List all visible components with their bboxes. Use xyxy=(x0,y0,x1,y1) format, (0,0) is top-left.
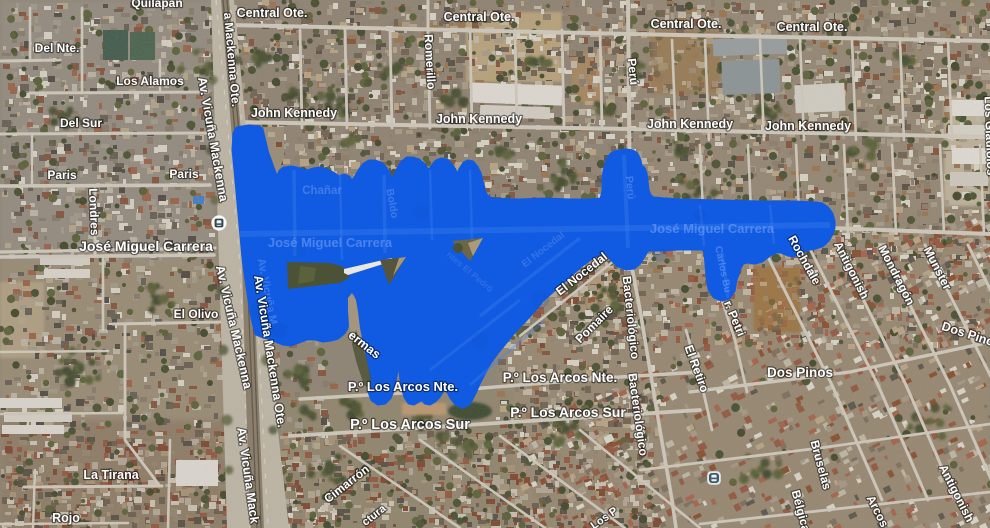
svg-text:Londres: Londres xyxy=(86,188,102,236)
svg-text:r. Petri: r. Petri xyxy=(721,299,748,339)
svg-text:Munster: Munster xyxy=(921,244,955,292)
svg-text:P.º Los Arcos Sur: P.º Los Arcos Sur xyxy=(510,404,626,420)
svg-text:Bruselas: Bruselas xyxy=(808,439,835,492)
svg-text:Perú: Perú xyxy=(625,58,642,86)
svg-text:Rojo: Rojo xyxy=(52,511,80,525)
svg-text:El Nocedal: El Nocedal xyxy=(553,249,610,298)
svg-text:Quilapán: Quilapán xyxy=(131,0,182,10)
svg-text:Rochdale: Rochdale xyxy=(785,233,824,287)
svg-text:La Tirana: La Tirana xyxy=(83,468,139,482)
svg-text:Av. Vicuña Mackenna Ote.: Av. Vicuña Mackenna Ote. xyxy=(251,274,289,428)
svg-text:Romerillo: Romerillo xyxy=(422,34,439,90)
svg-text:John Kennedy: John Kennedy xyxy=(765,119,851,133)
svg-text:Av. Vicuña Mackenna: Av. Vicuña Mackenna xyxy=(195,76,231,204)
svg-text:El Retiro: El Retiro xyxy=(682,343,712,394)
svg-text:Los Alamos: Los Alamos xyxy=(116,74,184,88)
svg-text:Paris: Paris xyxy=(47,168,77,182)
svg-text:John Kennedy: John Kennedy xyxy=(436,112,522,126)
svg-text:Antigonish: Antigonish xyxy=(936,462,977,524)
svg-text:Los Gladiolos: Los Gladiolos xyxy=(982,96,990,176)
svg-text:Central Ote.: Central Ote. xyxy=(651,17,722,31)
svg-text:Central Ote.: Central Ote. xyxy=(237,6,308,20)
svg-text:Los P: Los P xyxy=(589,505,620,528)
svg-text:Bacteriológico: Bacteriológico xyxy=(620,275,643,359)
svg-text:Paris: Paris xyxy=(169,167,199,181)
svg-text:Central Ote.: Central Ote. xyxy=(444,10,515,24)
svg-text:Del Nte.: Del Nte. xyxy=(35,41,80,55)
svg-text:Cimarrón: Cimarrón xyxy=(321,462,372,506)
svg-text:Bacteriológico: Bacteriológico xyxy=(625,372,650,456)
svg-text:John Kennedy: John Kennedy xyxy=(647,117,733,131)
svg-text:El Olivo: El Olivo xyxy=(174,307,219,321)
svg-text:John Kennedy: John Kennedy xyxy=(251,106,337,120)
svg-text:Del Sur: Del Sur xyxy=(60,116,102,130)
svg-text:a Mackenna Ote.: a Mackenna Ote. xyxy=(221,12,243,108)
svg-text:ermas: ermas xyxy=(346,328,384,362)
svg-text:Antigonish: Antigonish xyxy=(831,239,872,301)
svg-text:Central Ote.: Central Ote. xyxy=(777,20,848,34)
svg-text:José Miguel Carrera: José Miguel Carrera xyxy=(79,238,213,254)
svg-text:Pomaire: Pomaire xyxy=(572,302,616,346)
svg-text:P.º Los Arcos Nte.: P.º Los Arcos Nte. xyxy=(503,370,617,385)
svg-text:P.º Los Arcos Nte.: P.º Los Arcos Nte. xyxy=(348,379,458,394)
svg-text:ctura: ctura xyxy=(360,502,389,528)
svg-text:Arcos: Arcos xyxy=(864,493,892,528)
svg-text:Dos Pinos: Dos Pinos xyxy=(767,365,833,380)
svg-text:P.º Los Arcos Sur: P.º Los Arcos Sur xyxy=(350,417,470,433)
svg-text:Av. Vicuña Mack: Av. Vicuña Mack xyxy=(234,426,261,524)
svg-text:Bélgica: Bélgica xyxy=(789,489,814,528)
svg-text:Av. Vicuña Mackenna: Av. Vicuña Mackenna xyxy=(213,264,255,391)
svg-text:Dos Pinos: Dos Pinos xyxy=(940,319,990,351)
svg-text:Mondragón: Mondragón xyxy=(875,243,917,308)
